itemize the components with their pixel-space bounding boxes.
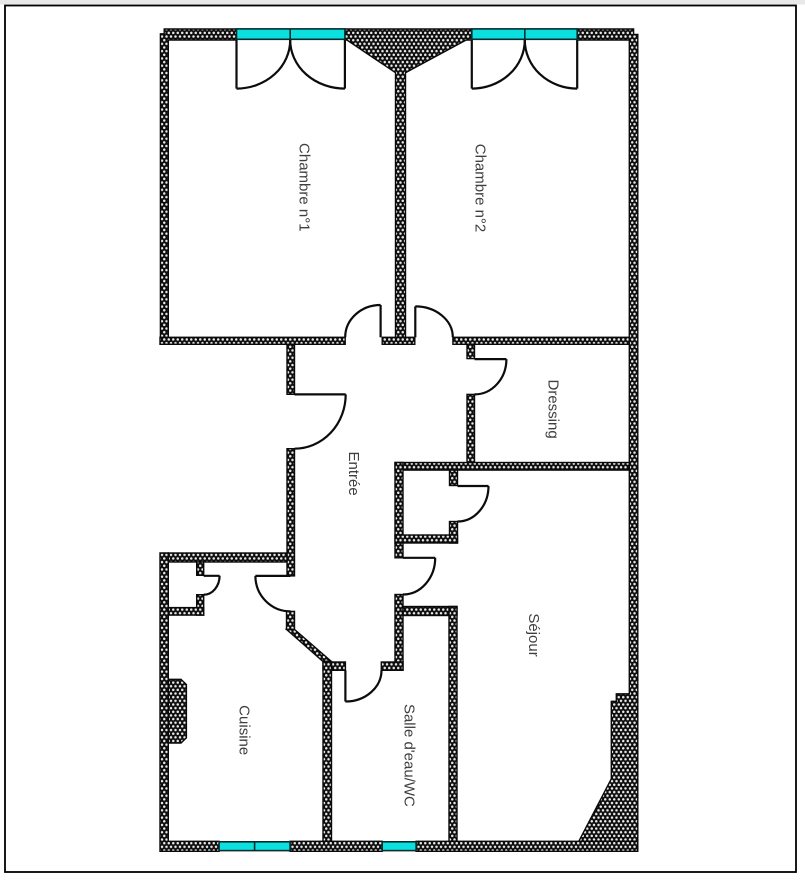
svg-text:Salle d'eau/WC: Salle d'eau/WC (401, 704, 418, 807)
svg-text:Séjour: Séjour (525, 613, 542, 656)
svg-text:Chambre n°1: Chambre n°1 (296, 143, 313, 232)
svg-text:Dressing: Dressing (545, 380, 562, 439)
svg-text:Cuisine: Cuisine (236, 705, 253, 755)
svg-text:Chambre n°2: Chambre n°2 (471, 144, 488, 233)
svg-text:Entrée: Entrée (345, 451, 362, 495)
